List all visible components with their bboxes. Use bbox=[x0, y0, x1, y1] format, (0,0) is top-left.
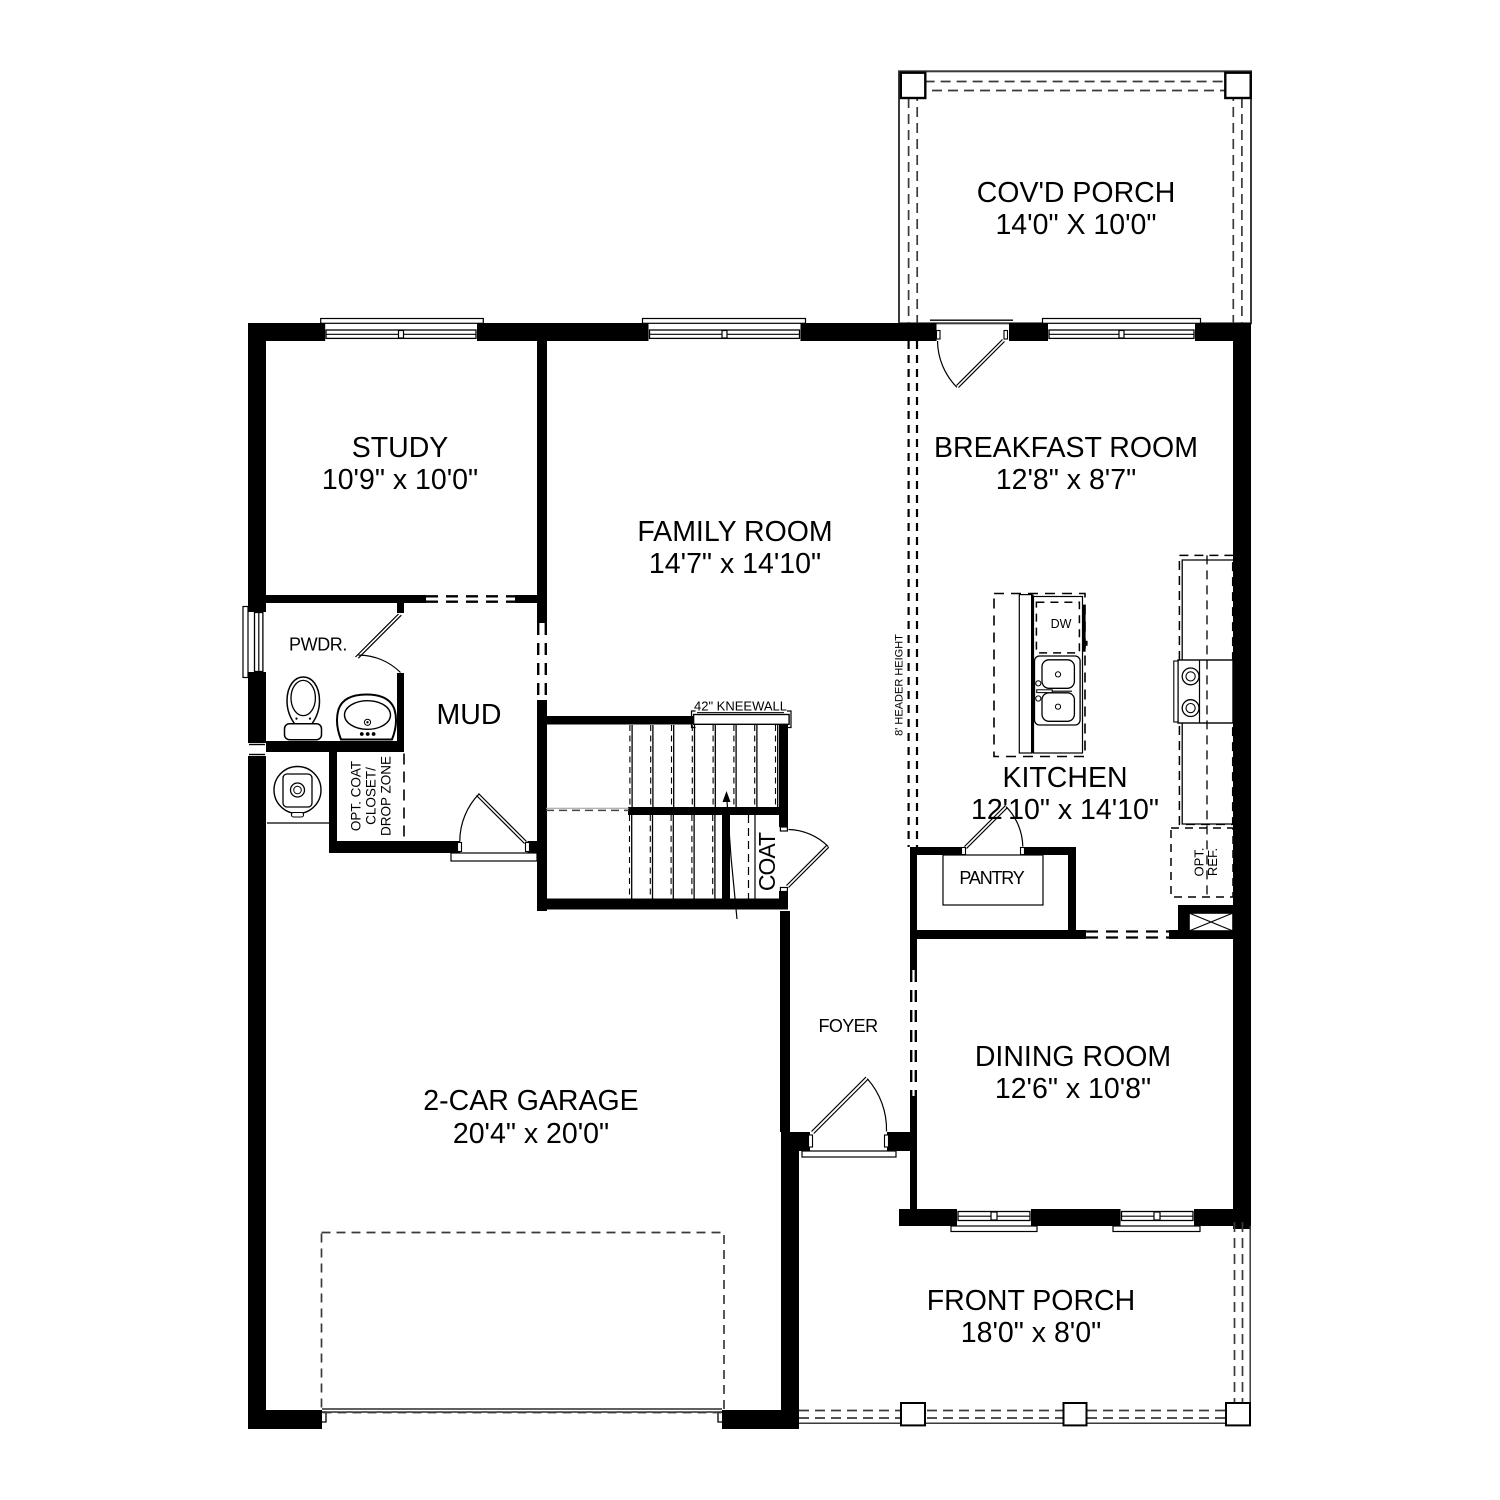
svg-text:12'8" x 8'7": 12'8" x 8'7" bbox=[996, 464, 1136, 496]
svg-text:PANTRY: PANTRY bbox=[959, 868, 1024, 888]
svg-text:COAT: COAT bbox=[754, 832, 780, 891]
svg-text:14'0" X 10'0": 14'0" X 10'0" bbox=[995, 209, 1156, 241]
svg-text:BREAKFAST ROOM: BREAKFAST ROOM bbox=[934, 432, 1198, 464]
svg-text:18'0" x 8'0": 18'0" x 8'0" bbox=[961, 1317, 1101, 1349]
svg-text:KITCHEN: KITCHEN bbox=[1002, 762, 1127, 794]
svg-text:DROP ZONE: DROP ZONE bbox=[379, 756, 394, 836]
svg-text:COV'D PORCH: COV'D PORCH bbox=[977, 177, 1176, 209]
svg-text:FOYER: FOYER bbox=[818, 1016, 878, 1036]
svg-text:12'6" x 10'8": 12'6" x 10'8" bbox=[995, 1073, 1151, 1105]
svg-text:12'10" x 14'10": 12'10" x 14'10" bbox=[971, 794, 1159, 826]
svg-text:MUD: MUD bbox=[437, 699, 502, 731]
svg-text:CLOSET/: CLOSET/ bbox=[364, 767, 379, 825]
svg-text:20'4" x 20'0": 20'4" x 20'0" bbox=[453, 1118, 609, 1150]
svg-text:FRONT PORCH: FRONT PORCH bbox=[927, 1285, 1135, 1317]
svg-text:DW: DW bbox=[1051, 617, 1072, 631]
svg-text:8' HEADER HEIGHT: 8' HEADER HEIGHT bbox=[894, 634, 906, 736]
svg-text:STUDY: STUDY bbox=[352, 432, 449, 464]
svg-text:DINING ROOM: DINING ROOM bbox=[975, 1041, 1171, 1073]
svg-text:2-CAR GARAGE: 2-CAR GARAGE bbox=[423, 1085, 638, 1117]
svg-text:OPT. COAT: OPT. COAT bbox=[349, 761, 364, 831]
svg-text:PWDR.: PWDR. bbox=[289, 635, 347, 655]
svg-text:REF.: REF. bbox=[1205, 848, 1220, 876]
svg-text:14'7" x 14'10": 14'7" x 14'10" bbox=[649, 548, 821, 580]
svg-text:10'9" x 10'0": 10'9" x 10'0" bbox=[322, 464, 478, 496]
svg-text:FAMILY ROOM: FAMILY ROOM bbox=[637, 516, 832, 548]
svg-text:42" KNEEWALL: 42" KNEEWALL bbox=[694, 699, 787, 714]
